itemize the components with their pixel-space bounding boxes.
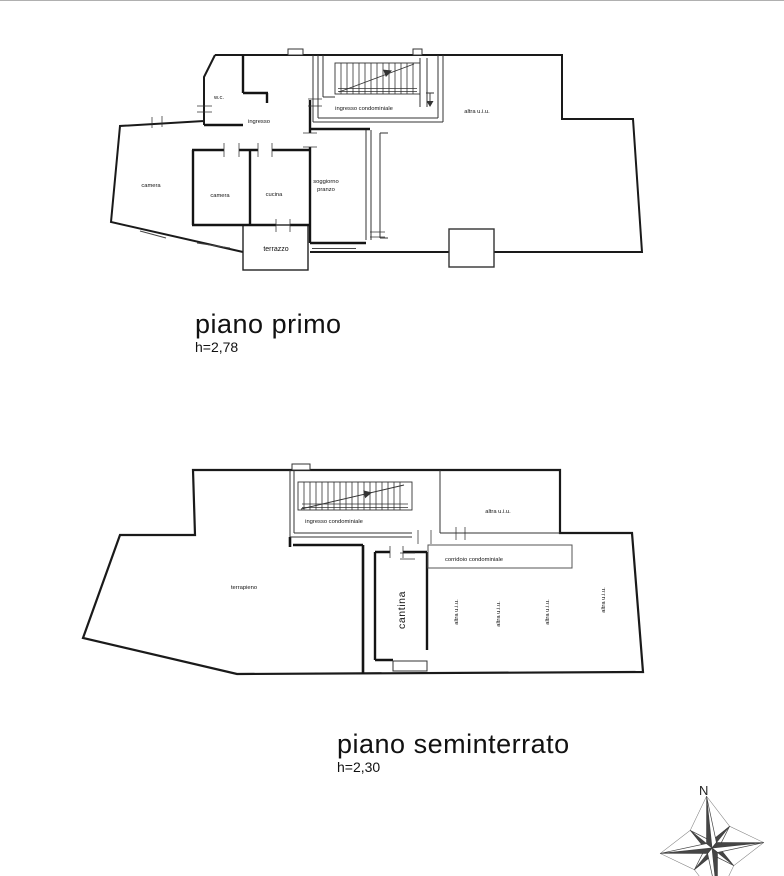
primo-label-ingresso: ingresso	[248, 119, 270, 125]
primo-label-wc: w.c.	[213, 95, 224, 101]
primo-stair-treads	[341, 63, 413, 94]
seminterrato-thick-walls	[290, 537, 363, 674]
primo-label-cucina: cucina	[266, 192, 284, 198]
seminterrato-label-terrapieno: terrapieno	[231, 585, 257, 591]
seminterrato-title-block: piano seminterrato h=2,30	[337, 730, 570, 776]
primo-soggiorno-right-bracket	[366, 130, 388, 240]
seminterrato-label-ingresso-condominiale: ingresso condominiale	[305, 519, 363, 525]
primo-roof-stub-1	[288, 49, 303, 55]
seminterrato-label-cell-2: altra u.i.u.	[496, 601, 502, 627]
seminterrato-stair-direction-line	[301, 485, 404, 509]
primo-stair-down-arrowhead	[427, 101, 434, 107]
primo-label-camera-1: camera	[141, 183, 161, 189]
primo-title: piano primo	[195, 310, 342, 338]
primo-exterior-walls	[111, 55, 642, 252]
seminterrato-cantina-door	[393, 661, 427, 671]
primo-stair-arrowhead	[383, 70, 392, 77]
compass-rose-icon	[655, 791, 769, 876]
seminterrato-stair-arrowhead	[363, 490, 372, 498]
floor-plan-sheet: w.c. ingresso ingresso condominiale altr…	[0, 0, 784, 876]
seminterrato-label-cell-4: altra u.i.u.	[601, 587, 607, 613]
primo-label-soggiorno-line2: pranzo	[317, 187, 335, 193]
primo-label-altra-uiu: altra u.i.u.	[464, 109, 490, 115]
seminterrato-stair-handrail	[302, 504, 408, 508]
seminterrato-label-altra-uiu-room: altra u.i.u.	[485, 509, 511, 515]
floor-plan-piano-primo: w.c. ingresso ingresso condominiale altr…	[111, 49, 642, 270]
primo-label-ingresso-condominiale: ingresso condominiale	[335, 106, 393, 112]
seminterrato-label-cell-1: altra u.i.u.	[454, 599, 460, 625]
primo-label-camera-2: camera	[210, 193, 230, 199]
primo-label-soggiorno-line1: soggiorno	[313, 179, 338, 185]
primo-stair-handrail	[338, 89, 417, 92]
seminterrato-height-label: h=2,30	[337, 760, 570, 775]
primo-label-terrazzo: terrazzo	[263, 246, 288, 253]
compass-north-label: N	[699, 783, 708, 798]
seminterrato-label-cantina: cantina	[396, 591, 408, 629]
primo-title-block: piano primo h=2,78	[195, 310, 342, 356]
seminterrato-label-corridoio: corridoio condominiale	[445, 557, 503, 563]
seminterrato-stair-treads	[304, 482, 400, 510]
seminterrato-label-cell-3: altra u.i.u.	[545, 599, 551, 625]
seminterrato-roof-stub	[292, 464, 310, 470]
primo-stair-direction-line	[339, 64, 414, 92]
primo-partitions	[192, 55, 370, 243]
floor-plan-piano-seminterrato: ingresso condominiale altra u.i.u. corri…	[83, 464, 643, 674]
primo-height-label: h=2,78	[195, 340, 342, 355]
seminterrato-stairwell	[290, 470, 560, 537]
seminterrato-title: piano seminterrato	[337, 730, 570, 758]
primo-roof-stub-2	[413, 49, 422, 55]
primo-annex-box	[449, 229, 494, 267]
seminterrato-stairwell-walls	[290, 470, 560, 537]
